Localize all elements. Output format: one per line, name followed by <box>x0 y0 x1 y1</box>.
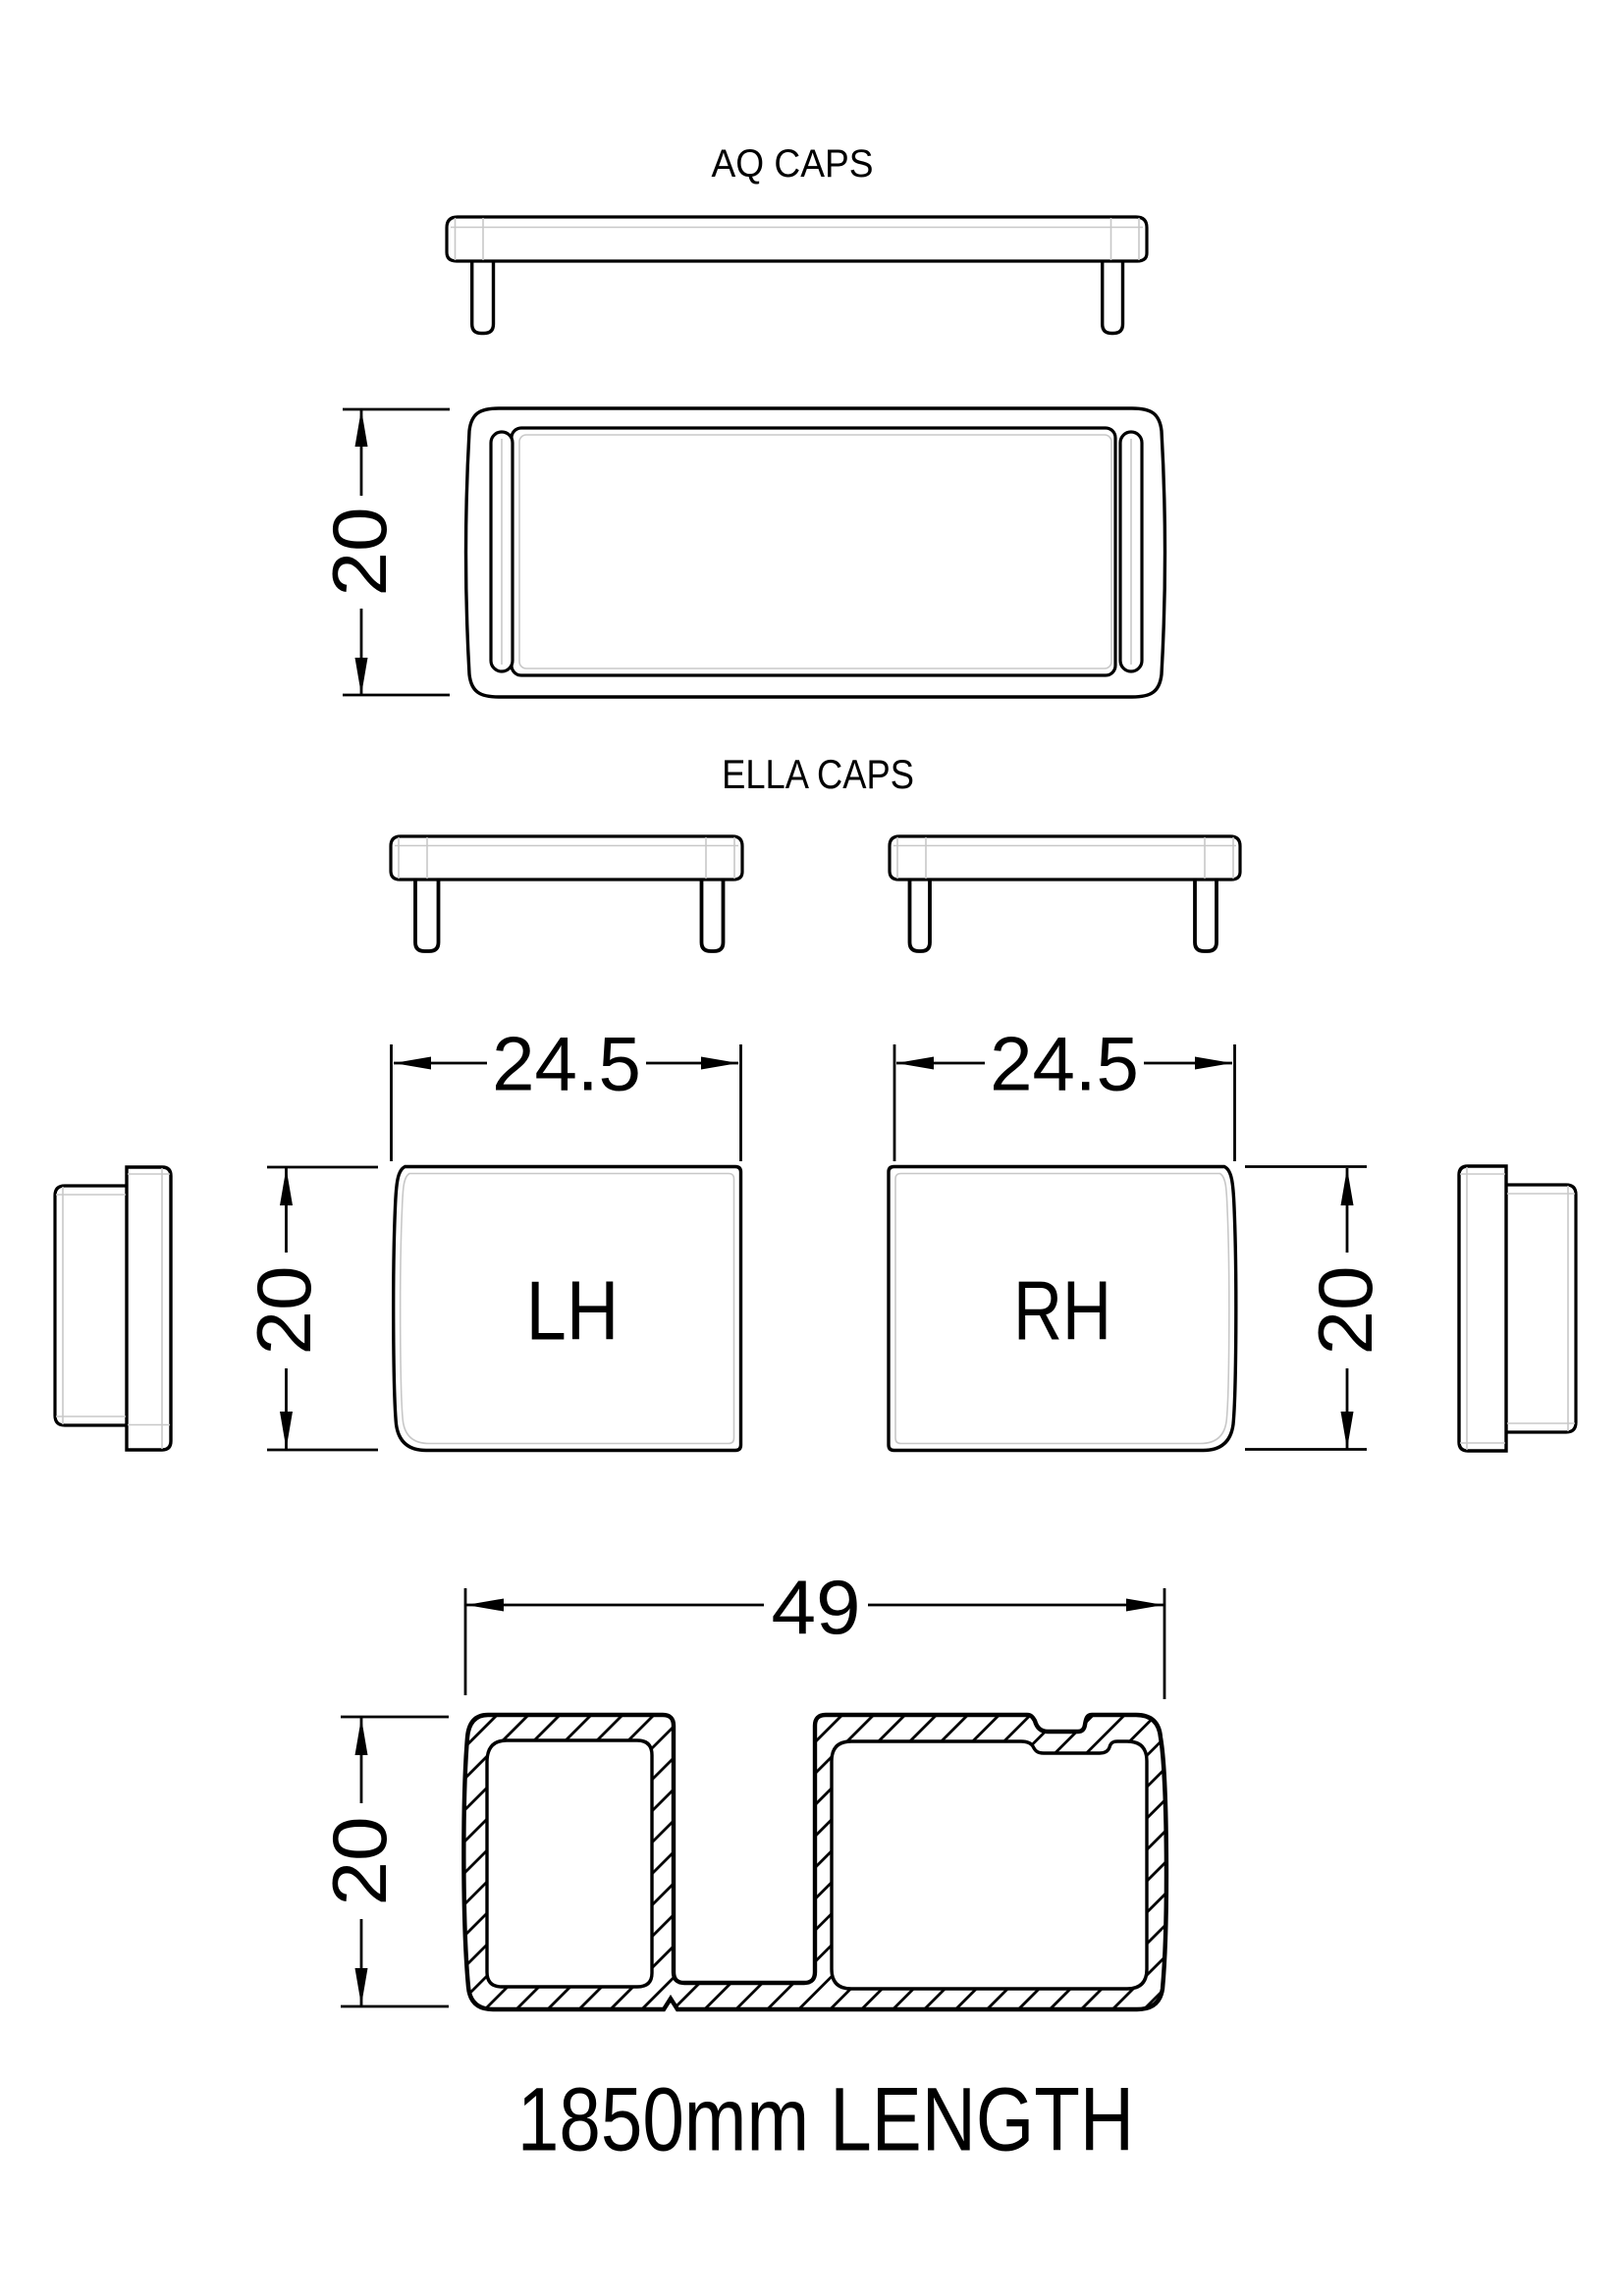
svg-text:20: 20 <box>317 507 403 596</box>
svg-text:20: 20 <box>1303 1265 1388 1355</box>
svg-text:20: 20 <box>317 1816 403 1905</box>
svg-text:ELLA CAPS: ELLA CAPS <box>722 752 914 798</box>
svg-text:1850mm LENGTH: 1850mm LENGTH <box>517 2069 1134 2169</box>
svg-text:LH: LH <box>526 1264 620 1358</box>
svg-text:24.5: 24.5 <box>492 1021 641 1107</box>
svg-text:20: 20 <box>242 1265 327 1355</box>
svg-text:49: 49 <box>771 1565 860 1650</box>
svg-text:RH: RH <box>1013 1265 1111 1359</box>
svg-text:24.5: 24.5 <box>990 1021 1139 1107</box>
svg-text:AQ CAPS: AQ CAPS <box>711 142 873 186</box>
